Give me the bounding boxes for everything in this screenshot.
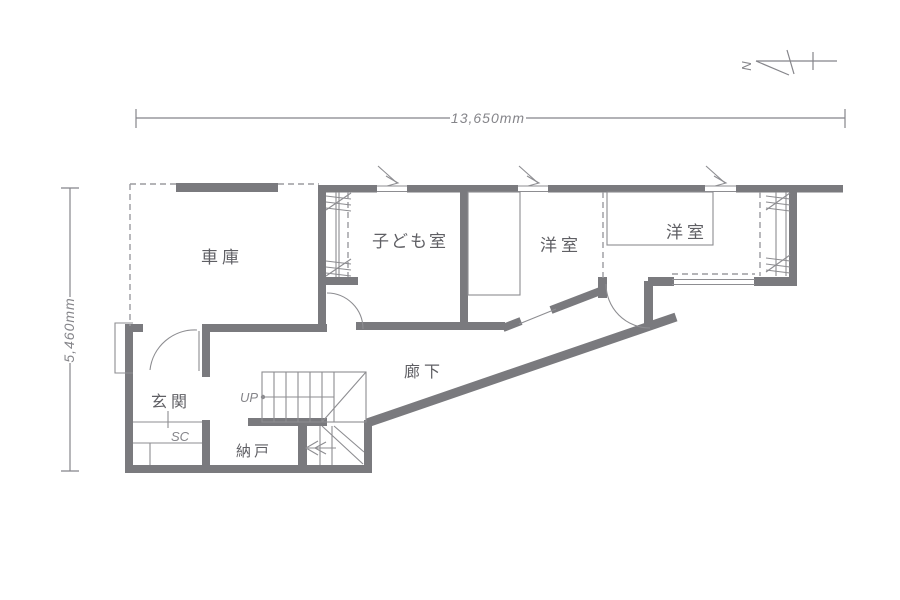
western-right-label: 洋室 [666,223,708,242]
entrance-label: 玄関 [151,393,191,411]
north-label: N [739,61,754,71]
stair-right-wall [364,420,372,470]
left-exterior-wall [125,324,133,473]
floor-plan-drawing: 13,650mm 5,460mm N [0,0,900,600]
shoe-closet [133,411,202,465]
window-gap [518,184,548,194]
right-room-door-right-stub [644,281,653,324]
shoe-closet-label: SC [171,429,190,444]
storage-right-wall [298,424,307,470]
bottom-exterior-wall [125,465,372,473]
stair-start-dot [261,395,265,399]
right-exterior-wall [789,185,797,283]
storage-left-wall [202,420,210,470]
storage-label: 納戸 [236,443,272,460]
diagonal-wall-stub [503,321,521,328]
western-center-bed [468,192,520,295]
north-arrow: N [739,50,837,75]
north-arrow-tick [787,50,794,74]
garage-outline [115,184,319,373]
entrance-side-wall [202,324,210,377]
diagonal-wall-upper [551,290,603,310]
door-arc [606,284,650,328]
height-dimension-label: 5,460mm [61,297,77,362]
stair-winder-line [334,426,364,452]
door-arc [150,330,197,370]
kids-room-closet [326,192,351,277]
stair-winder-line [322,426,363,464]
window-western-center [518,166,548,194]
corridor-sliding-door [519,309,556,324]
western-right-door [606,284,650,328]
width-dimension-label: 13,650mm [451,110,525,126]
kids-western-partition-wall [460,187,468,330]
corridor-label: 廊下 [404,363,444,381]
right-room-bottom-wall-right-stub [754,277,797,286]
room-labels: 車庫 子ども室 洋室 洋室 廊下 玄関 納戸 UP SC [151,223,708,460]
walls [125,183,843,473]
kids-room-label: 子ども室 [372,232,448,251]
north-arrow-edge [756,61,789,75]
corridor-top-wall [356,322,505,330]
window-kids-room [377,166,407,194]
window-western-right [705,166,736,194]
garage-bottom-wall [202,324,327,332]
stairs-up-label: UP [240,390,258,405]
kids-closet-bottom-wall [318,277,358,285]
right-room-closet [760,192,790,276]
floor-plan-page: 13,650mm 5,460mm N [0,0,900,600]
garage-kids-partition-wall [318,185,326,328]
top-dimension: 13,650mm [136,109,845,128]
garage-top-wall-segment [176,183,278,192]
left-dimension: 5,460mm [61,188,79,471]
western-center-label: 洋室 [540,236,582,255]
door-leaf [519,309,556,324]
window-gap [377,184,407,194]
entrance-door [150,330,199,371]
right-room-bottom-window [672,274,755,285]
garage-label: 車庫 [201,248,243,267]
